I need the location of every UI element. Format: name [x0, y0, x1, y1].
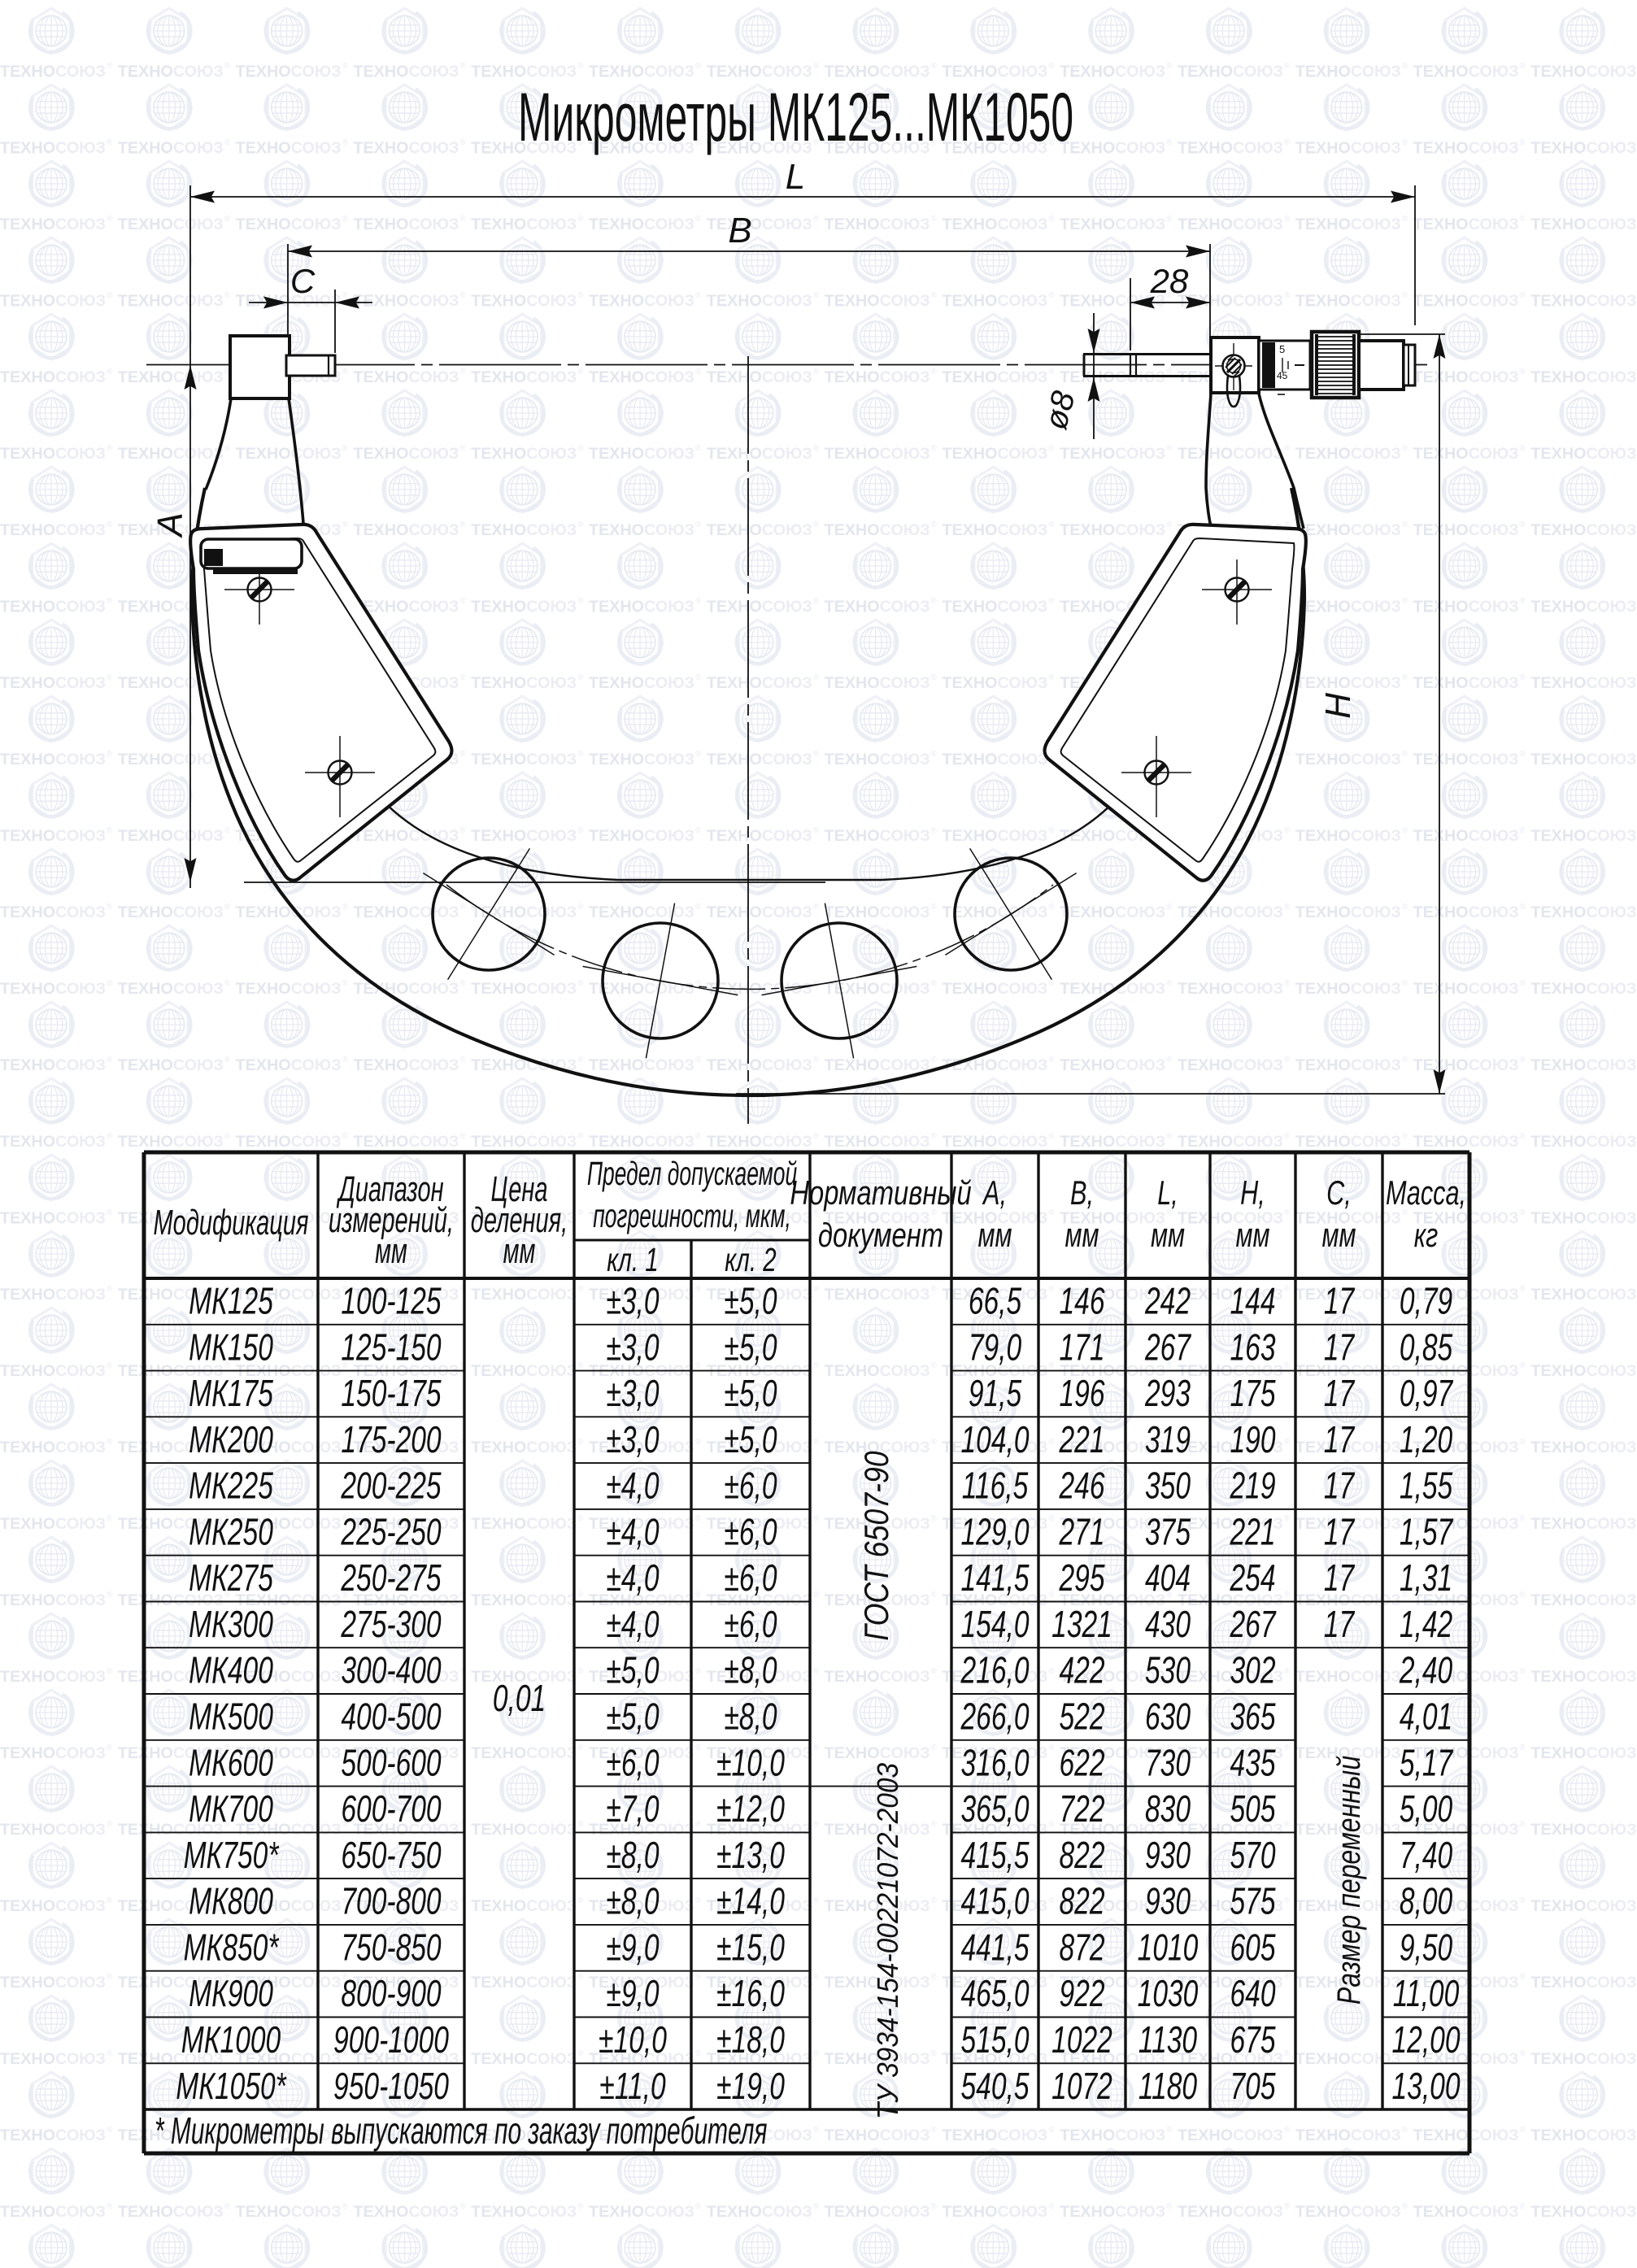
svg-text:МК1000: МК1000 [181, 2019, 281, 2061]
svg-text:505: 505 [1230, 1788, 1276, 1830]
svg-text:±16,0: ±16,0 [716, 1973, 785, 2014]
svg-text:МК125: МК125 [189, 1280, 273, 1321]
svg-text:±3,0: ±3,0 [606, 1373, 660, 1414]
svg-text:522: 522 [1059, 1696, 1104, 1737]
svg-text:±7,0: ±7,0 [606, 1788, 660, 1830]
svg-text:415,0: 415,0 [960, 1881, 1030, 1922]
svg-text:430: 430 [1145, 1604, 1191, 1645]
svg-text:1,42: 1,42 [1400, 1604, 1452, 1645]
svg-text:МК700: МК700 [189, 1788, 273, 1830]
svg-text:12,00: 12,00 [1391, 2019, 1461, 2061]
svg-text:129,0: 129,0 [960, 1511, 1030, 1552]
svg-text:435: 435 [1230, 1742, 1276, 1783]
svg-text:±6,0: ±6,0 [724, 1557, 777, 1599]
svg-text:МК500: МК500 [189, 1696, 273, 1737]
svg-text:900-1000: 900-1000 [333, 2019, 449, 2061]
svg-text:±5,0: ±5,0 [724, 1373, 777, 1414]
svg-text:267: 267 [1144, 1326, 1191, 1368]
svg-text:1,55: 1,55 [1400, 1465, 1453, 1506]
svg-text:Размер переменный: Размер переменный [1330, 1756, 1367, 2005]
svg-text:0,79: 0,79 [1400, 1280, 1452, 1321]
svg-text:МК200: МК200 [189, 1419, 273, 1460]
svg-text:мм: мм [375, 1230, 407, 1271]
svg-text:±9,0: ±9,0 [606, 1973, 660, 2014]
svg-text:МК175: МК175 [189, 1373, 273, 1414]
svg-text:500-600: 500-600 [341, 1742, 442, 1783]
svg-text:930: 930 [1145, 1835, 1191, 1876]
svg-text:293: 293 [1144, 1373, 1191, 1414]
svg-text:175-200: 175-200 [341, 1419, 442, 1460]
svg-text:1010: 1010 [1138, 1926, 1199, 1968]
svg-text:125-150: 125-150 [341, 1326, 442, 1368]
svg-text:750-850: 750-850 [341, 1926, 442, 1968]
svg-text:630: 630 [1145, 1696, 1191, 1737]
svg-text:17: 17 [1324, 1326, 1356, 1368]
svg-text:146: 146 [1059, 1280, 1105, 1321]
svg-text:622: 622 [1059, 1742, 1104, 1783]
svg-text:МК800: МК800 [189, 1881, 273, 1922]
svg-text:±9,0: ±9,0 [606, 1926, 660, 1968]
svg-text:МК250: МК250 [189, 1511, 273, 1552]
svg-text:±5,0: ±5,0 [724, 1280, 777, 1321]
svg-text:±6,0: ±6,0 [606, 1742, 660, 1783]
svg-text:1130: 1130 [1138, 2019, 1198, 2061]
svg-text:±4,0: ±4,0 [606, 1604, 660, 1645]
svg-text:±6,0: ±6,0 [724, 1511, 777, 1552]
svg-text:221: 221 [1059, 1419, 1105, 1460]
svg-text:кл. 2: кл. 2 [725, 1241, 777, 1278]
svg-text:267: 267 [1230, 1604, 1277, 1645]
svg-text:L,: L, [1157, 1173, 1178, 1212]
svg-text:11,00: 11,00 [1393, 1973, 1460, 2014]
svg-text:±5,0: ±5,0 [606, 1650, 660, 1691]
svg-text:МК1050*: МК1050* [176, 2066, 287, 2107]
svg-text:мм: мм [1064, 1216, 1099, 1254]
svg-text:400-500: 400-500 [341, 1696, 442, 1737]
svg-text:мм: мм [1321, 1216, 1356, 1254]
svg-text:422: 422 [1059, 1650, 1104, 1691]
svg-text:650-750: 650-750 [341, 1835, 442, 1876]
svg-text:17: 17 [1324, 1511, 1356, 1552]
svg-text:530: 530 [1145, 1650, 1191, 1691]
svg-text:документ: документ [818, 1216, 943, 1254]
svg-text:±6,0: ±6,0 [724, 1604, 777, 1645]
svg-text:79,0: 79,0 [969, 1326, 1022, 1368]
svg-text:МК150: МК150 [189, 1326, 273, 1368]
svg-text:1,57: 1,57 [1400, 1511, 1454, 1552]
svg-text:275-300: 275-300 [341, 1604, 442, 1645]
svg-text:91,5: 91,5 [969, 1373, 1022, 1414]
svg-text:375: 375 [1145, 1511, 1191, 1552]
svg-text:мм: мм [503, 1230, 536, 1271]
svg-text:±8,0: ±8,0 [724, 1650, 777, 1691]
svg-text:МК300: МК300 [189, 1604, 273, 1645]
svg-text:Модификация: Модификация [153, 1202, 308, 1243]
svg-text:5,00: 5,00 [1400, 1788, 1453, 1830]
svg-text:730: 730 [1145, 1742, 1191, 1783]
svg-text:316,0: 316,0 [960, 1742, 1030, 1783]
svg-text:мм: мм [1151, 1216, 1185, 1254]
svg-text:±5,0: ±5,0 [724, 1326, 777, 1368]
svg-text:Предел допускаемой: Предел допускаемой [587, 1156, 797, 1192]
svg-text:17: 17 [1324, 1280, 1356, 1321]
svg-text:МК275: МК275 [189, 1557, 273, 1599]
svg-text:±18,0: ±18,0 [716, 2019, 785, 2061]
svg-text:кл. 1: кл. 1 [607, 1241, 658, 1278]
svg-text:2,40: 2,40 [1399, 1650, 1453, 1691]
svg-text:±12,0: ±12,0 [716, 1788, 785, 1830]
svg-text:ТУ 3934-154-00221072-2003: ТУ 3934-154-00221072-2003 [873, 1762, 904, 2119]
svg-text:640: 640 [1230, 1973, 1276, 2014]
svg-text:271: 271 [1059, 1511, 1105, 1552]
svg-text:17: 17 [1324, 1557, 1356, 1599]
svg-text:930: 930 [1145, 1881, 1191, 1922]
svg-text:872: 872 [1059, 1926, 1104, 1968]
svg-text:погрешности, мкм,: погрешности, мкм, [593, 1198, 791, 1234]
svg-text:±4,0: ±4,0 [606, 1557, 660, 1599]
svg-text:±3,0: ±3,0 [606, 1280, 660, 1321]
svg-text:605: 605 [1230, 1926, 1276, 1968]
svg-text:822: 822 [1059, 1835, 1104, 1876]
svg-text:116,5: 116,5 [962, 1465, 1029, 1506]
svg-text:9,50: 9,50 [1400, 1926, 1453, 1968]
svg-text:700-800: 700-800 [341, 1881, 442, 1922]
svg-text:0,97: 0,97 [1400, 1373, 1454, 1414]
svg-text:МК400: МК400 [189, 1650, 273, 1691]
svg-text:0,01: 0,01 [493, 1678, 546, 1719]
svg-text:246: 246 [1059, 1465, 1105, 1506]
svg-text:225-250: 225-250 [341, 1511, 442, 1552]
svg-text:ГОСТ 6507-90: ГОСТ 6507-90 [858, 1451, 895, 1641]
svg-text:7,40: 7,40 [1400, 1835, 1453, 1876]
svg-text:С,: С, [1326, 1173, 1352, 1212]
svg-text:±10,0: ±10,0 [599, 2019, 667, 2061]
svg-text:800-900: 800-900 [341, 1973, 442, 2014]
svg-text:8,00: 8,00 [1400, 1881, 1453, 1922]
svg-text:219: 219 [1230, 1465, 1276, 1506]
svg-text:266,0: 266,0 [960, 1696, 1030, 1737]
svg-text:295: 295 [1059, 1557, 1105, 1599]
svg-text:600-700: 600-700 [341, 1788, 442, 1830]
svg-text:Масса,: Масса, [1386, 1173, 1466, 1212]
svg-text:0,85: 0,85 [1400, 1326, 1453, 1368]
svg-text:МК900: МК900 [189, 1973, 273, 2014]
svg-text:190: 190 [1230, 1419, 1276, 1460]
svg-text:±13,0: ±13,0 [716, 1835, 785, 1876]
svg-text:МК850*: МК850* [184, 1926, 280, 1968]
svg-text:17: 17 [1324, 1419, 1356, 1460]
svg-text:±8,0: ±8,0 [724, 1696, 777, 1737]
svg-text:5,17: 5,17 [1400, 1742, 1454, 1783]
svg-text:±5,0: ±5,0 [606, 1696, 660, 1737]
svg-text:300-400: 300-400 [341, 1650, 442, 1691]
svg-text:415,5: 415,5 [960, 1835, 1030, 1876]
svg-text:МК600: МК600 [189, 1742, 273, 1783]
svg-text:±4,0: ±4,0 [606, 1511, 660, 1552]
svg-text:175: 175 [1230, 1373, 1276, 1414]
svg-text:154,0: 154,0 [960, 1604, 1030, 1645]
svg-text:171: 171 [1059, 1326, 1104, 1368]
svg-text:705: 705 [1230, 2066, 1276, 2107]
svg-text:МК750*: МК750* [184, 1835, 280, 1876]
svg-text:150-175: 150-175 [341, 1373, 442, 1414]
svg-text:1,31: 1,31 [1400, 1557, 1452, 1599]
svg-text:221: 221 [1230, 1511, 1276, 1552]
svg-text:104,0: 104,0 [960, 1419, 1030, 1460]
svg-text:100-125: 100-125 [341, 1280, 442, 1321]
svg-text:441,5: 441,5 [960, 1926, 1030, 1968]
svg-text:319: 319 [1145, 1419, 1191, 1460]
svg-text:822: 822 [1059, 1881, 1104, 1922]
svg-text:±19,0: ±19,0 [716, 2066, 785, 2107]
svg-text:141,5: 141,5 [960, 1557, 1030, 1599]
svg-text:144: 144 [1230, 1280, 1275, 1321]
svg-text:МК225: МК225 [189, 1465, 273, 1506]
svg-text:±8,0: ±8,0 [606, 1835, 660, 1876]
svg-text:404: 404 [1145, 1557, 1191, 1599]
svg-text:Н,: Н, [1240, 1173, 1265, 1212]
svg-text:1180: 1180 [1138, 2066, 1198, 2107]
svg-text:950-1050: 950-1050 [333, 2066, 449, 2107]
svg-text:1072: 1072 [1051, 2066, 1112, 2107]
svg-text:1321: 1321 [1051, 1604, 1112, 1645]
svg-text:465,0: 465,0 [960, 1973, 1030, 2014]
svg-text:1030: 1030 [1138, 1973, 1199, 2014]
svg-text:216,0: 216,0 [960, 1650, 1030, 1691]
svg-text:200-225: 200-225 [341, 1465, 442, 1506]
svg-text:мм: мм [977, 1216, 1012, 1254]
svg-text:мм: мм [1235, 1216, 1269, 1254]
svg-text:А,: А, [982, 1173, 1007, 1212]
svg-text:17: 17 [1324, 1465, 1356, 1506]
svg-text:515,0: 515,0 [960, 2019, 1030, 2061]
svg-text:250-275: 250-275 [341, 1557, 442, 1599]
svg-text:254: 254 [1230, 1557, 1276, 1599]
svg-text:350: 350 [1145, 1465, 1191, 1506]
svg-text:302: 302 [1230, 1650, 1275, 1691]
svg-text:13,00: 13,00 [1391, 2066, 1461, 2107]
svg-text:17: 17 [1324, 1373, 1356, 1414]
svg-text:±5,0: ±5,0 [724, 1419, 777, 1460]
svg-text:365: 365 [1230, 1696, 1276, 1737]
svg-text:±15,0: ±15,0 [716, 1926, 785, 1968]
svg-text:1022: 1022 [1051, 2019, 1112, 2061]
svg-text:В,: В, [1070, 1173, 1094, 1212]
svg-text:830: 830 [1145, 1788, 1191, 1830]
svg-text:±8,0: ±8,0 [606, 1881, 660, 1922]
svg-text:±14,0: ±14,0 [716, 1881, 785, 1922]
svg-text:242: 242 [1144, 1280, 1191, 1321]
svg-text:575: 575 [1230, 1881, 1276, 1922]
svg-text:кг: кг [1414, 1216, 1439, 1254]
svg-text:±11,0: ±11,0 [599, 2066, 666, 2107]
svg-text:922: 922 [1059, 1973, 1104, 2014]
svg-text:±3,0: ±3,0 [606, 1326, 660, 1368]
svg-text:675: 675 [1230, 2019, 1276, 2061]
svg-text:570: 570 [1230, 1835, 1276, 1876]
svg-text:722: 722 [1059, 1788, 1104, 1830]
svg-text:163: 163 [1230, 1326, 1276, 1368]
svg-text:±4,0: ±4,0 [606, 1465, 660, 1506]
svg-text:540,5: 540,5 [960, 2066, 1030, 2107]
svg-text:Нормативный: Нормативный [790, 1173, 971, 1212]
svg-text:1,20: 1,20 [1400, 1419, 1453, 1460]
svg-text:66,5: 66,5 [969, 1280, 1022, 1321]
svg-text:196: 196 [1059, 1373, 1105, 1414]
svg-text:±10,0: ±10,0 [716, 1742, 785, 1783]
svg-text:* Микрометры выпускаются по за: * Микрометры выпускаются по заказу потре… [155, 2111, 767, 2153]
svg-text:4,01: 4,01 [1400, 1696, 1452, 1737]
svg-text:±6,0: ±6,0 [724, 1465, 777, 1506]
svg-text:17: 17 [1324, 1604, 1356, 1645]
svg-text:±3,0: ±3,0 [606, 1419, 660, 1460]
svg-text:365,0: 365,0 [960, 1788, 1030, 1830]
